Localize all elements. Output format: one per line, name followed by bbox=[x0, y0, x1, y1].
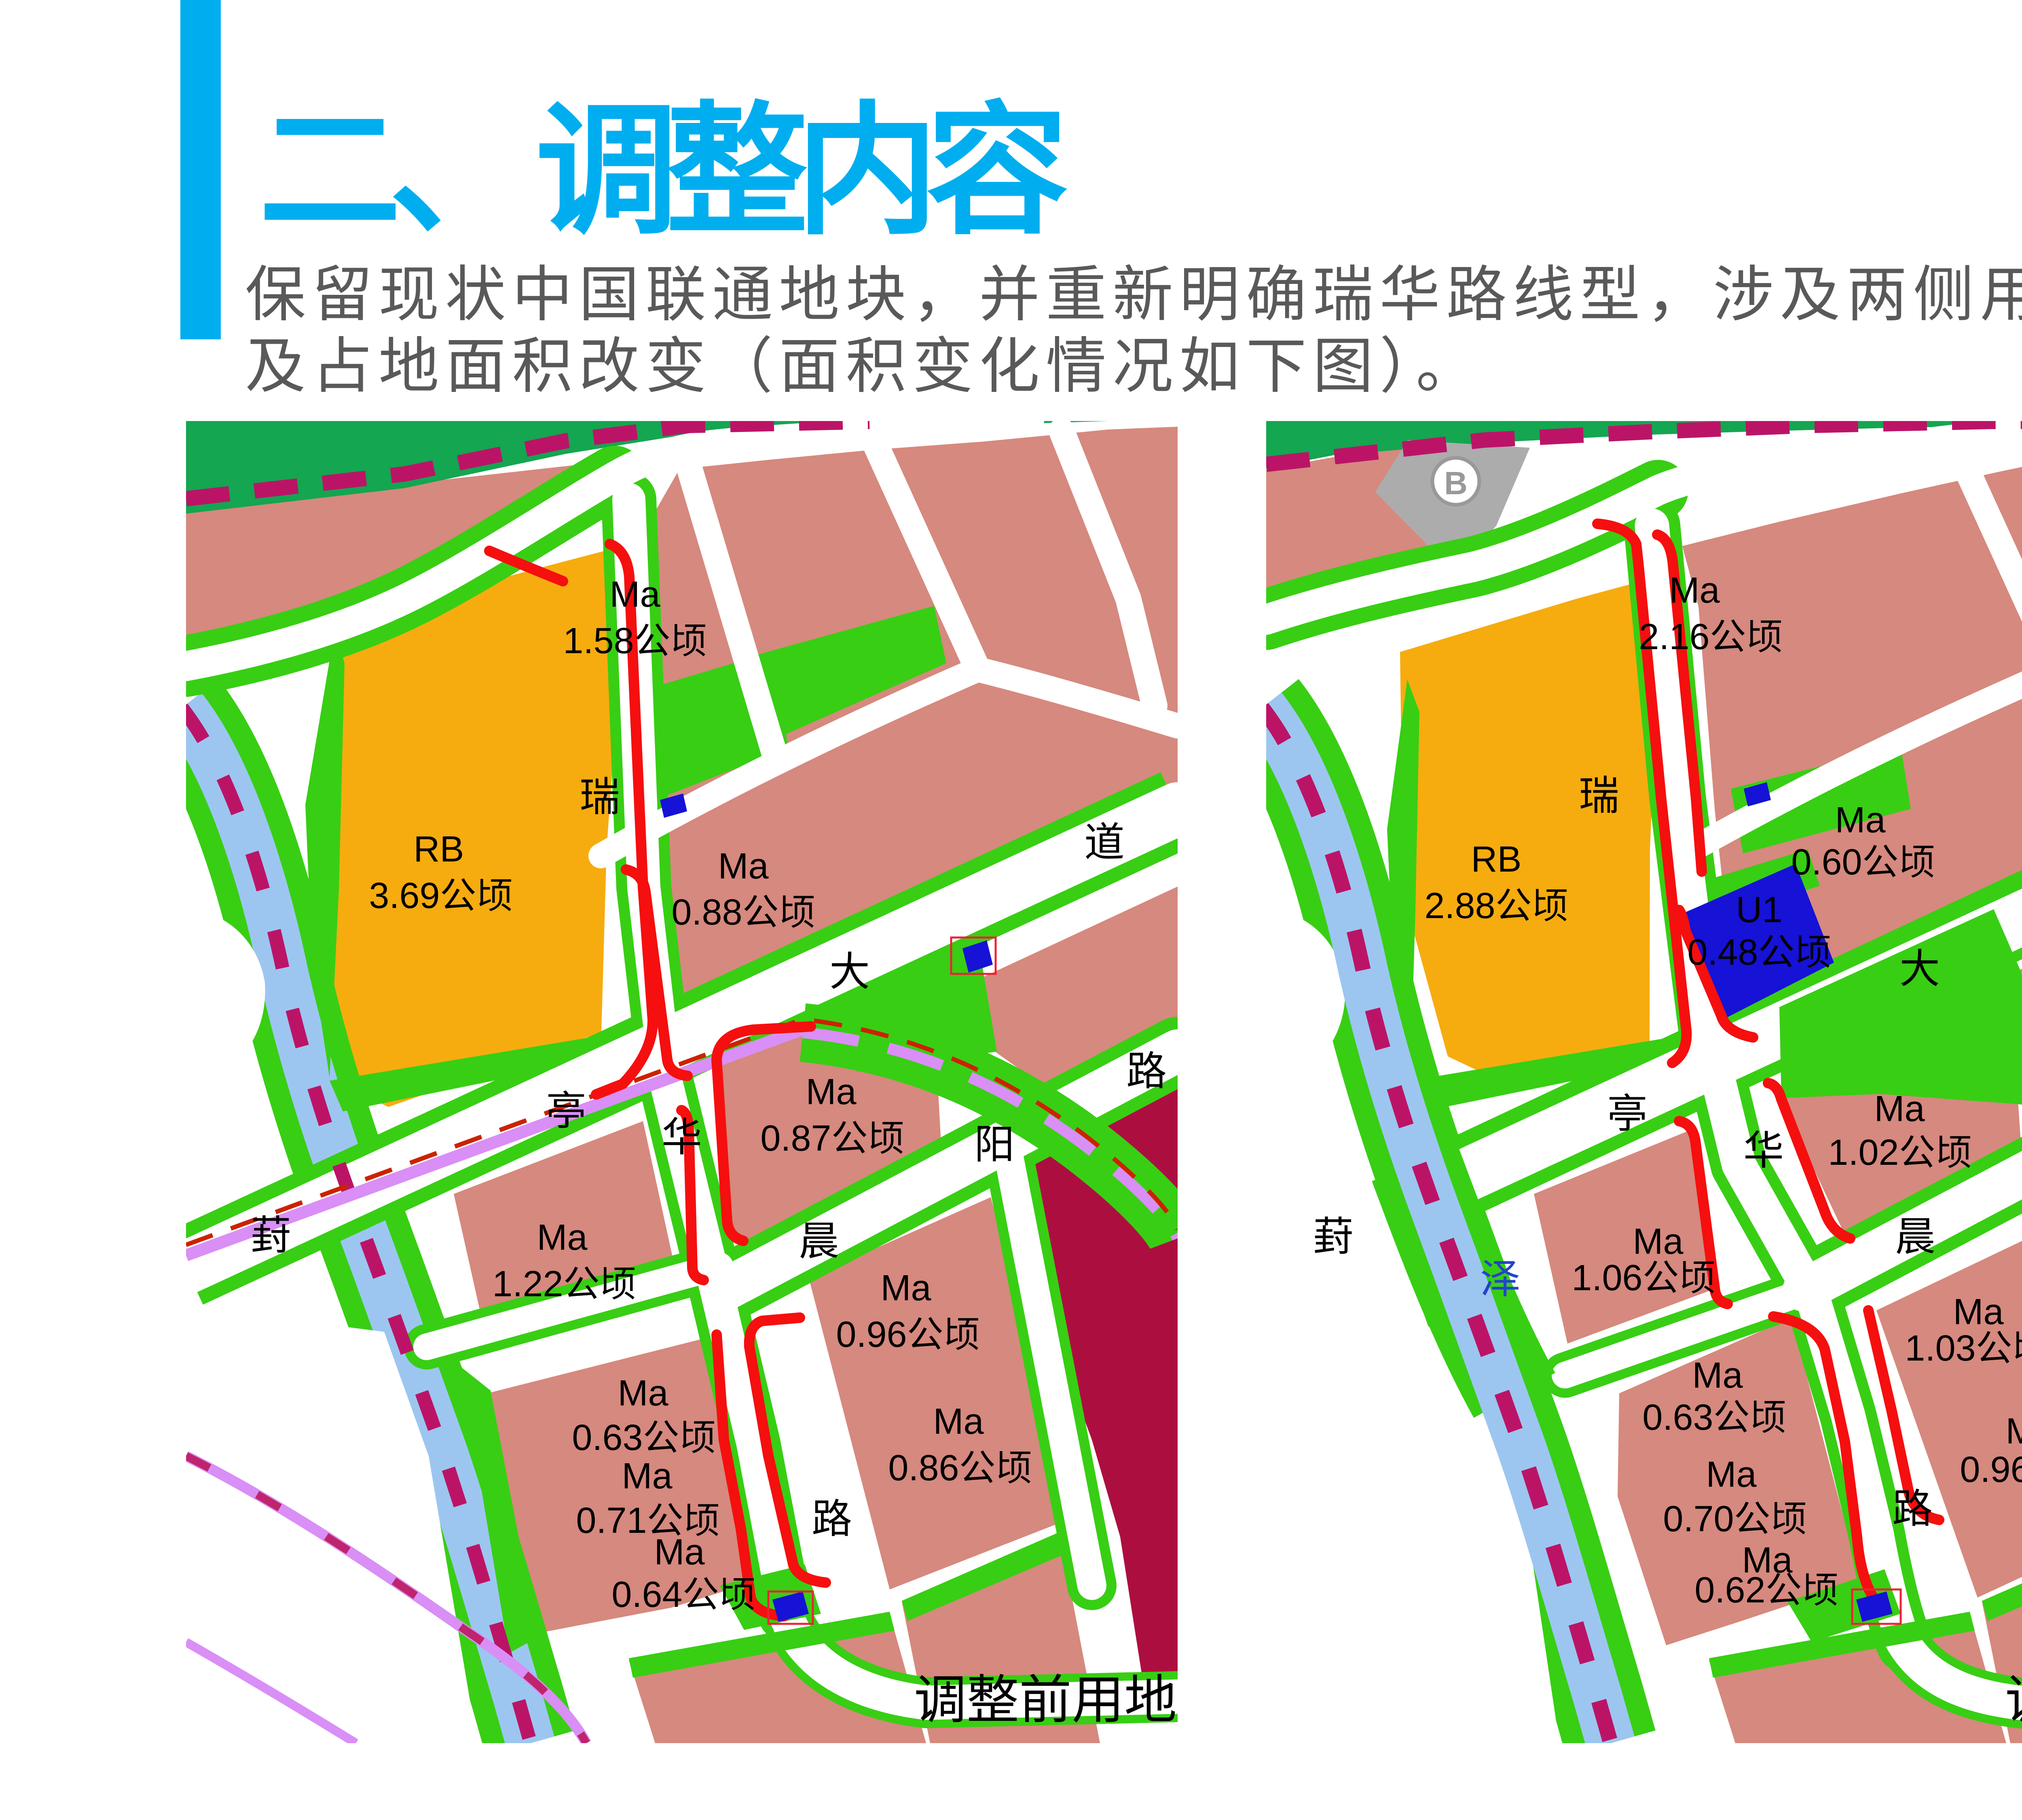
svg-text:Ma: Ma bbox=[933, 1401, 984, 1442]
svg-text:大: 大 bbox=[1899, 946, 1940, 992]
svg-text:1.06公顷: 1.06公顷 bbox=[1571, 1258, 1715, 1298]
svg-text:亭: 亭 bbox=[1607, 1091, 1648, 1136]
svg-text:华: 华 bbox=[662, 1115, 702, 1160]
svg-text:RB: RB bbox=[413, 829, 464, 870]
svg-text:泽: 泽 bbox=[1480, 1257, 1521, 1302]
svg-text:0.64公顷: 0.64公顷 bbox=[611, 1575, 755, 1615]
svg-text:Ma: Ma bbox=[1874, 1089, 1925, 1129]
svg-text:0.96公顷: 0.96公顷 bbox=[836, 1314, 979, 1355]
svg-text:0.62公顷: 0.62公顷 bbox=[1694, 1570, 1838, 1610]
svg-text:Ma: Ma bbox=[718, 846, 769, 887]
svg-text:0.70公顷: 0.70公顷 bbox=[1663, 1499, 1806, 1539]
svg-text:瑞: 瑞 bbox=[1579, 773, 1619, 819]
svg-text:RB: RB bbox=[1471, 839, 1521, 880]
svg-text:1.58公顷: 1.58公顷 bbox=[563, 621, 706, 661]
svg-text:葑: 葑 bbox=[1313, 1214, 1354, 1259]
svg-text:1.03公顷: 1.03公顷 bbox=[1905, 1328, 2022, 1369]
svg-text:Ma: Ma bbox=[1953, 1292, 2004, 1332]
svg-text:0.60公顷: 0.60公顷 bbox=[1791, 842, 1935, 882]
svg-text:0.48公顷: 0.48公顷 bbox=[1687, 932, 1831, 973]
svg-text:U1: U1 bbox=[1736, 890, 1782, 930]
svg-text:Ma: Ma bbox=[806, 1072, 857, 1112]
svg-text:Ma: Ma bbox=[2005, 1411, 2022, 1452]
svg-text:0.63公顷: 0.63公顷 bbox=[572, 1418, 715, 1458]
svg-text:晨: 晨 bbox=[799, 1219, 839, 1264]
svg-text:0.88公顷: 0.88公顷 bbox=[671, 892, 815, 933]
svg-text:调整前用地: 调整前用地 bbox=[914, 1670, 1177, 1729]
svg-text:Ma: Ma bbox=[618, 1373, 668, 1414]
svg-text:Ma: Ma bbox=[537, 1217, 588, 1258]
svg-text:Ma: Ma bbox=[1835, 800, 1886, 840]
svg-text:Ma: Ma bbox=[1706, 1454, 1757, 1495]
svg-text:阳: 阳 bbox=[974, 1122, 1015, 1167]
svg-text:1.22公顷: 1.22公顷 bbox=[492, 1264, 636, 1304]
svg-text:Ma: Ma bbox=[880, 1268, 931, 1308]
svg-text:路: 路 bbox=[812, 1496, 852, 1542]
svg-text:Ma: Ma bbox=[622, 1456, 673, 1496]
svg-text:路: 路 bbox=[1126, 1049, 1167, 1094]
svg-text:3.69公顷: 3.69公顷 bbox=[369, 876, 512, 916]
svg-text:葑: 葑 bbox=[251, 1213, 291, 1258]
svg-text:Ma: Ma bbox=[654, 1532, 705, 1572]
svg-text:Ma: Ma bbox=[609, 574, 660, 615]
svg-text:B: B bbox=[1444, 465, 1468, 501]
svg-text:0.63公顷: 0.63公顷 bbox=[1642, 1397, 1786, 1438]
svg-text:Ma: Ma bbox=[1692, 1355, 1743, 1396]
svg-text:道: 道 bbox=[1084, 820, 1125, 865]
svg-text:华: 华 bbox=[1743, 1128, 1784, 1173]
svg-text:1.02公顷: 1.02公顷 bbox=[1828, 1132, 1971, 1173]
svg-text:晨: 晨 bbox=[1895, 1214, 1935, 1259]
svg-text:2.88公顷: 2.88公顷 bbox=[1424, 886, 1568, 926]
svg-text:0.87公顷: 0.87公顷 bbox=[760, 1118, 904, 1159]
svg-text:调整后用地: 调整后用地 bbox=[2005, 1670, 2022, 1729]
svg-text:2.16公顷: 2.16公顷 bbox=[1639, 617, 1782, 657]
svg-text:亭: 亭 bbox=[546, 1088, 586, 1134]
svg-text:Ma: Ma bbox=[1669, 570, 1720, 611]
svg-text:0.96公顷: 0.96公顷 bbox=[1960, 1450, 2022, 1490]
svg-text:瑞: 瑞 bbox=[580, 775, 620, 820]
svg-text:路: 路 bbox=[1892, 1486, 1933, 1532]
svg-text:Ma: Ma bbox=[1633, 1221, 1684, 1262]
svg-text:0.86公顷: 0.86公顷 bbox=[888, 1448, 1032, 1488]
svg-text:大: 大 bbox=[829, 949, 870, 995]
